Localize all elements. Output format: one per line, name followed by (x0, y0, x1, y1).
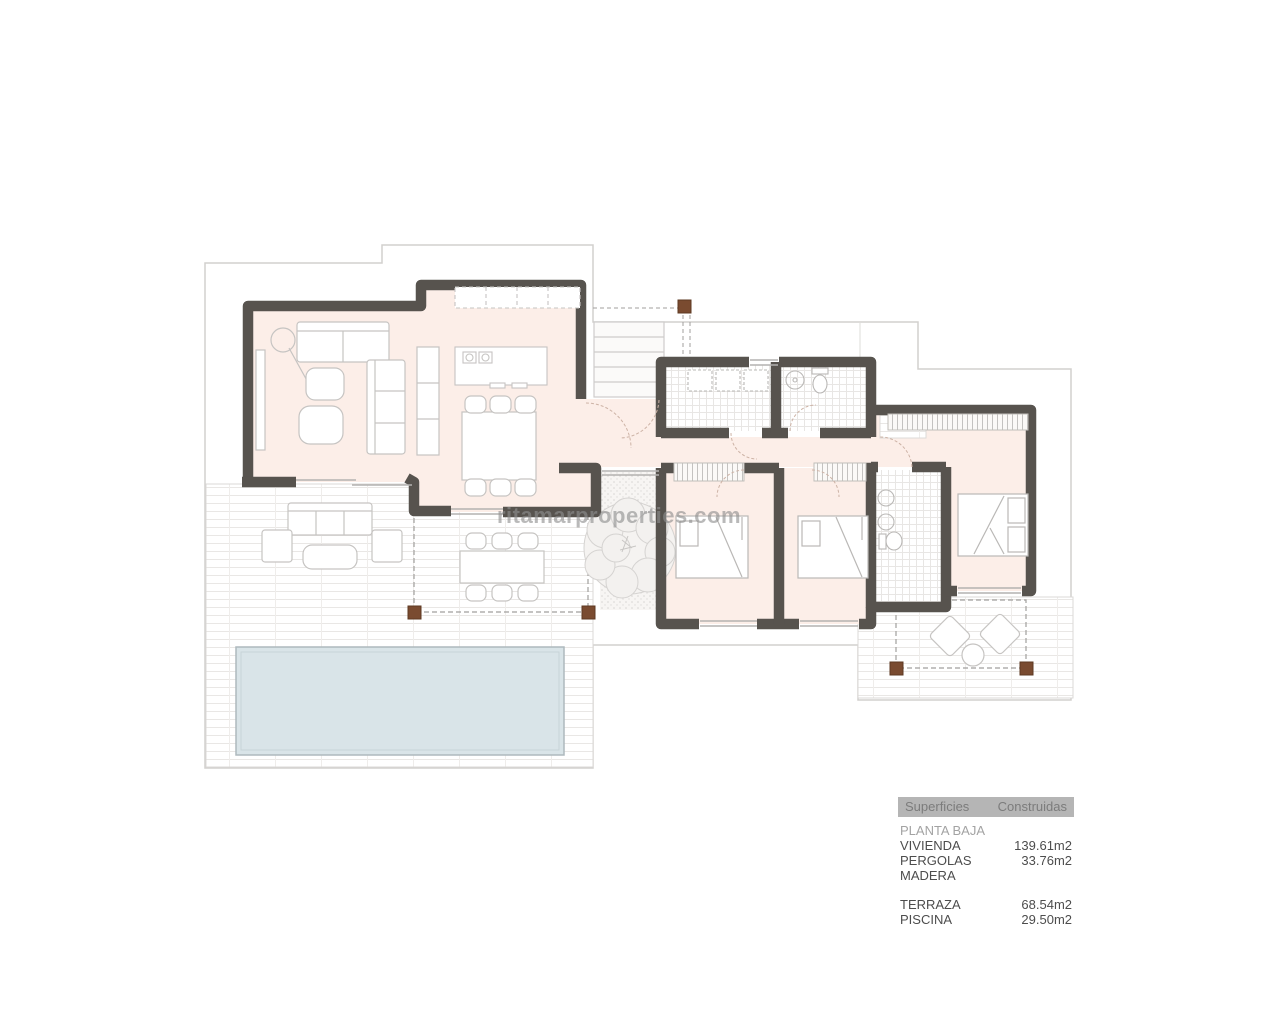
legend-gap (898, 883, 1074, 897)
bed-master (958, 494, 1028, 556)
legend-row: PISCINA 29.50m2 (898, 912, 1074, 927)
bed-2 (798, 516, 868, 578)
entry-steps (594, 322, 664, 397)
legend-row-value: 68.54m2 (1021, 897, 1072, 912)
legend-header-col2: Construidas (998, 799, 1067, 814)
swimming-pool (236, 647, 564, 755)
legend-row-value: 33.76m2 (1021, 853, 1072, 883)
legend-row: VIVIENDA 139.61m2 (898, 838, 1074, 853)
legend-row-label: TERRAZA (900, 897, 961, 912)
legend-row-label: VIVIENDA (900, 838, 961, 853)
legend-row-label: PERGOLAS MADERA (900, 853, 1021, 883)
legend-section-title: PLANTA BAJA (900, 824, 1074, 838)
watermark-text: ritamarproperties.com (497, 503, 741, 529)
legend-header-col1: Superficies (905, 799, 969, 814)
legend-row-value: 139.61m2 (1014, 838, 1072, 853)
legend-table: Superficies Construidas PLANTA BAJA VIVI… (898, 797, 1074, 927)
legend-row-label: PISCINA (900, 912, 952, 927)
legend-row: TERRAZA 68.54m2 (898, 897, 1074, 912)
legend-header: Superficies Construidas (898, 797, 1074, 817)
legend-row: PERGOLAS MADERA 33.76m2 (898, 853, 1074, 883)
floorplan-page: ritamarproperties.com Superficies Constr… (0, 0, 1280, 1024)
legend-row-value: 29.50m2 (1021, 912, 1072, 927)
